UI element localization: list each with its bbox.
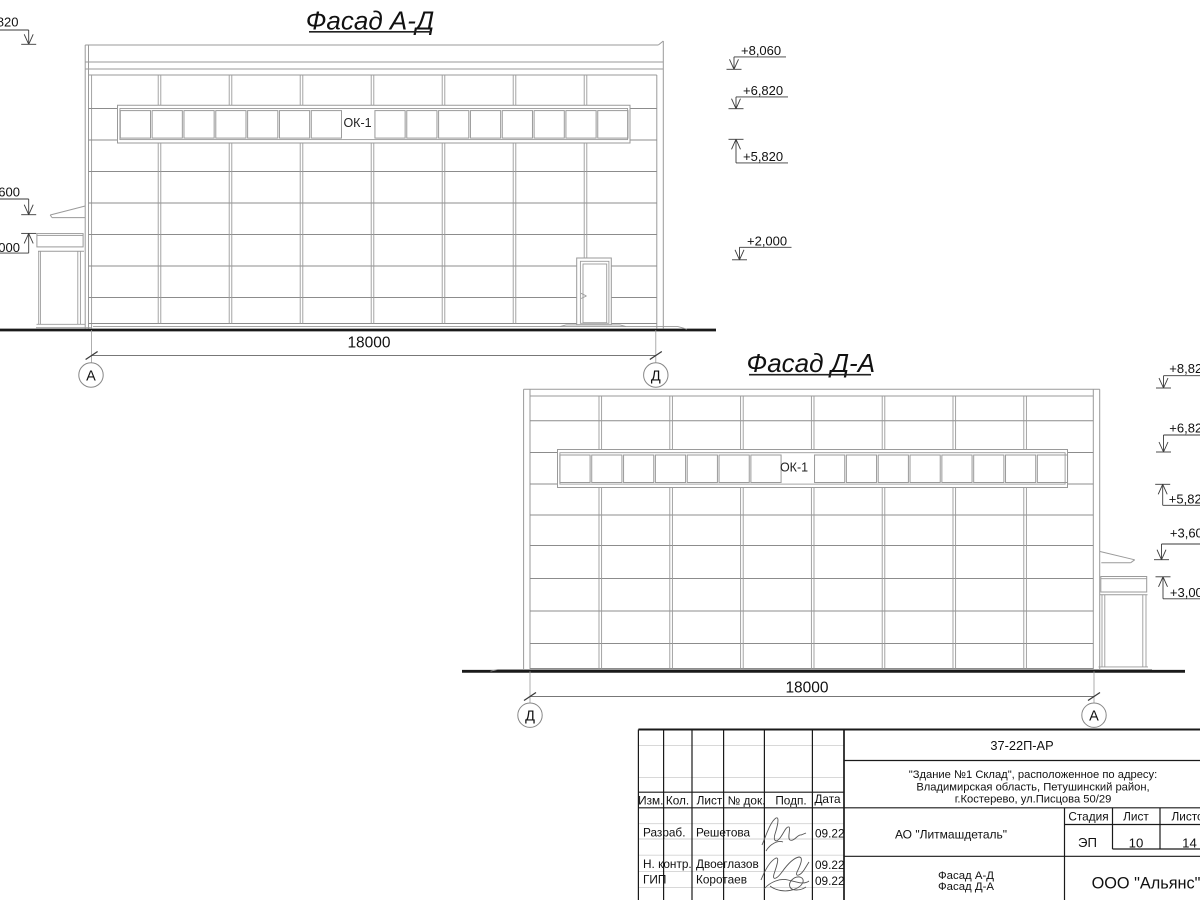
svg-text:37-22П-АР: 37-22П-АР xyxy=(990,738,1053,753)
svg-text:Н. контр.: Н. контр. xyxy=(643,857,692,871)
svg-text:+8,82: +8,82 xyxy=(1169,361,1200,376)
svg-text:Листов: Листов xyxy=(1172,810,1200,824)
svg-text:Коротаев: Коротаев xyxy=(696,872,747,886)
svg-text:09.22: 09.22 xyxy=(815,858,845,872)
svg-text:Разраб.: Разраб. xyxy=(643,825,685,839)
svg-text:г.Костерево, ул.Писцова 50/29: г.Костерево, ул.Писцова 50/29 xyxy=(955,794,1112,806)
svg-text:ЭП: ЭП xyxy=(1078,835,1097,850)
svg-text:14: 14 xyxy=(1182,836,1197,851)
svg-text:+8,060: +8,060 xyxy=(741,43,781,58)
svg-text:Д: Д xyxy=(651,368,661,384)
svg-text:Кол.: Кол. xyxy=(666,794,689,808)
svg-text:09.22: 09.22 xyxy=(815,826,845,840)
svg-text:600: 600 xyxy=(0,185,20,200)
svg-text:Двоеглазов: Двоеглазов xyxy=(696,857,759,871)
svg-text:А: А xyxy=(1089,709,1099,725)
svg-text:+5,820: +5,820 xyxy=(743,149,783,164)
svg-text:18000: 18000 xyxy=(785,680,828,697)
svg-text:820: 820 xyxy=(0,15,19,30)
svg-text:Фасад Д-А: Фасад Д-А xyxy=(938,881,994,893)
svg-text:+6,820: +6,820 xyxy=(743,83,783,98)
svg-text:+2,000: +2,000 xyxy=(747,233,787,248)
svg-text:+3,60: +3,60 xyxy=(1170,526,1200,541)
svg-text:Владимирская область, Петушинс: Владимирская область, Петушинский район, xyxy=(916,781,1149,793)
svg-text:№ док.: № док. xyxy=(728,794,766,808)
svg-text:Изм.: Изм. xyxy=(638,794,663,808)
svg-text:ГИП: ГИП xyxy=(643,872,666,886)
svg-text:+5,82: +5,82 xyxy=(1169,491,1200,506)
svg-text:09.22: 09.22 xyxy=(815,874,845,888)
svg-text:ООО "Альянс": ООО "Альянс" xyxy=(1092,875,1200,893)
svg-text:+6,82: +6,82 xyxy=(1169,420,1200,435)
svg-text:10: 10 xyxy=(1129,836,1144,851)
svg-text:+3,00: +3,00 xyxy=(1170,585,1200,600)
svg-text:Фасад Д-А: Фасад Д-А xyxy=(747,348,876,378)
svg-text:Д: Д xyxy=(525,709,535,725)
svg-text:Подп.: Подп. xyxy=(775,794,806,808)
svg-text:Решетова: Решетова xyxy=(696,825,751,839)
svg-text:18000: 18000 xyxy=(347,335,390,352)
svg-text:А: А xyxy=(86,368,96,384)
svg-text:Стадия: Стадия xyxy=(1068,810,1108,824)
svg-text:"Здание №1 Склад", расположенн: "Здание №1 Склад", расположенное по адре… xyxy=(909,769,1157,781)
svg-text:Дата: Дата xyxy=(814,792,841,806)
svg-text:ОК-1: ОК-1 xyxy=(343,116,371,130)
svg-text:Лист: Лист xyxy=(1123,810,1149,824)
svg-text:АО "Литмашдеталь": АО "Литмашдеталь" xyxy=(895,828,1007,842)
svg-text:Лист: Лист xyxy=(697,794,723,808)
svg-text:ОК-1: ОК-1 xyxy=(780,460,808,474)
